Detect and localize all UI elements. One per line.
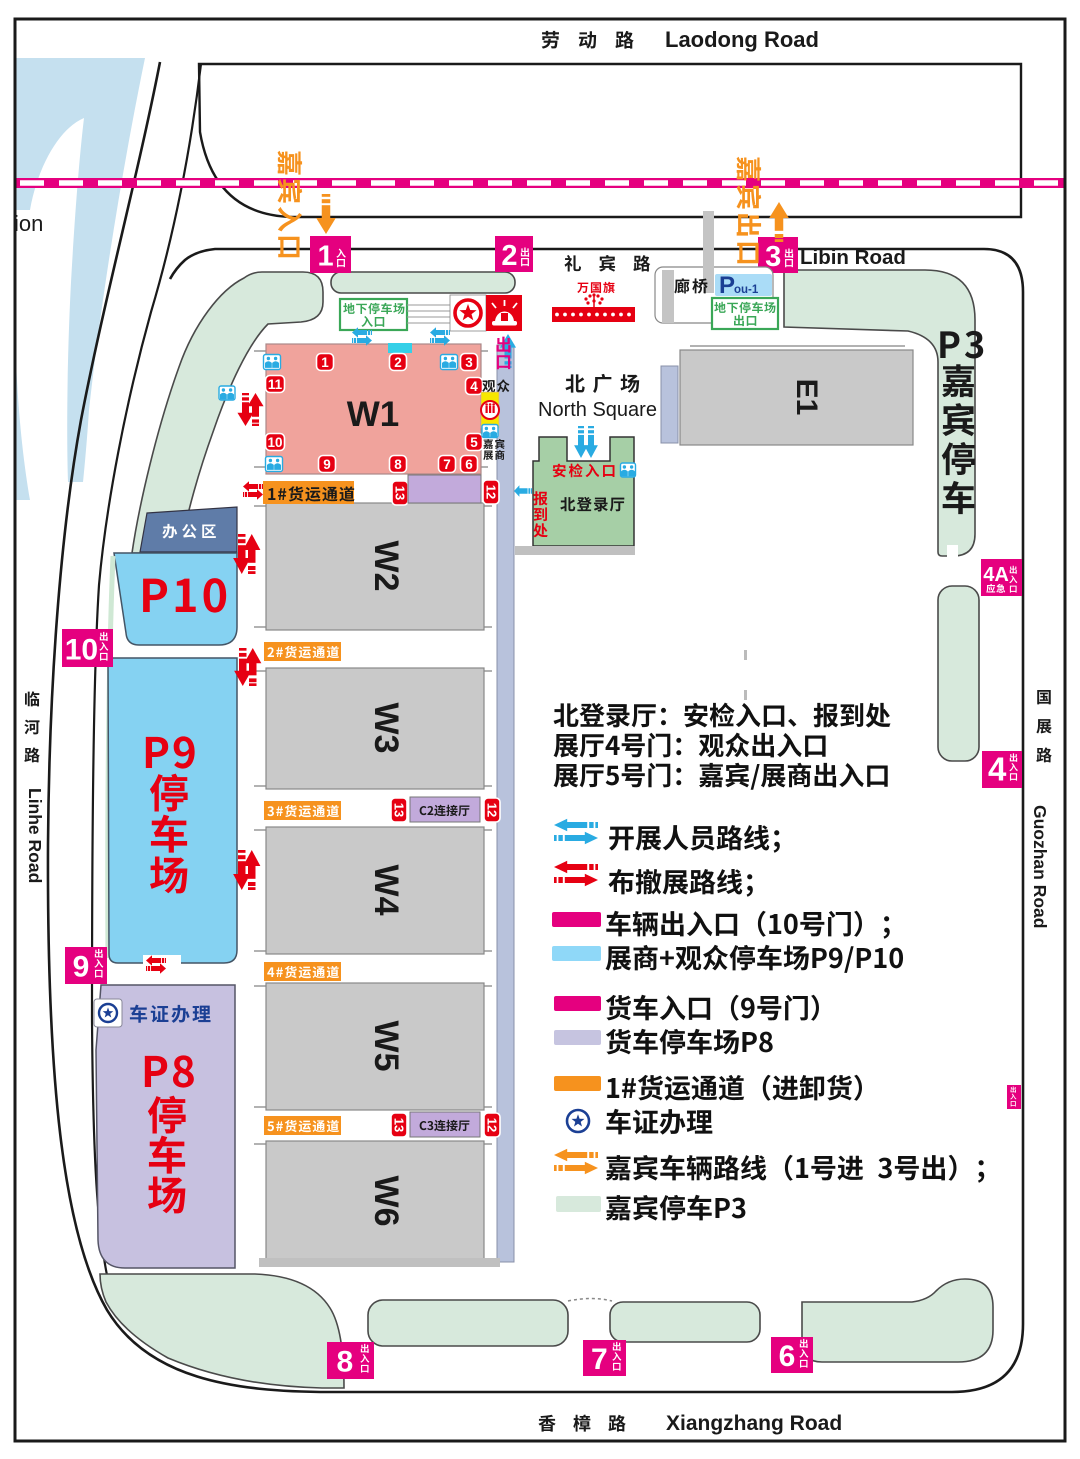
svg-text:5: 5 xyxy=(470,435,478,450)
svg-text:6: 6 xyxy=(779,1340,796,1373)
svg-text:Laodong Road: Laodong Road xyxy=(665,27,819,52)
svg-text:7: 7 xyxy=(591,1343,608,1376)
svg-text:2: 2 xyxy=(394,355,402,370)
svg-text:Xiangzhang Road: Xiangzhang Road xyxy=(666,1412,842,1435)
svg-text:9: 9 xyxy=(73,951,90,984)
svg-text:Libin Road: Libin Road xyxy=(800,246,906,269)
svg-text:ou-1: ou-1 xyxy=(734,284,759,296)
svg-text:13: 13 xyxy=(392,803,407,817)
svg-text:P: P xyxy=(719,272,735,299)
svg-text:8: 8 xyxy=(394,457,402,472)
svg-text:9: 9 xyxy=(323,457,331,472)
svg-text:W5: W5 xyxy=(367,1021,405,1072)
svg-text:ion: ion xyxy=(14,211,43,236)
svg-text:12: 12 xyxy=(485,803,500,817)
svg-text:W2: W2 xyxy=(367,541,405,592)
svg-text:2: 2 xyxy=(501,240,517,272)
svg-text:4A: 4A xyxy=(983,564,1009,586)
svg-text:1: 1 xyxy=(318,241,334,273)
svg-text:10: 10 xyxy=(267,435,282,450)
svg-text:11: 11 xyxy=(268,377,283,392)
svg-text:13: 13 xyxy=(393,486,408,500)
svg-text:4: 4 xyxy=(988,751,1007,788)
svg-text:W1: W1 xyxy=(347,395,400,434)
svg-text:6: 6 xyxy=(465,457,473,472)
svg-text:13: 13 xyxy=(392,1118,407,1132)
svg-text:4: 4 xyxy=(470,379,478,394)
svg-text:12: 12 xyxy=(485,1118,500,1132)
svg-text:8: 8 xyxy=(337,1346,354,1379)
svg-text:W3: W3 xyxy=(367,703,405,754)
svg-text:7: 7 xyxy=(443,457,451,472)
svg-text:12: 12 xyxy=(484,485,499,499)
svg-text:E1: E1 xyxy=(790,379,823,416)
svg-text:Linhe Road: Linhe Road xyxy=(25,788,45,883)
svg-text:3: 3 xyxy=(465,355,473,370)
svg-text:1: 1 xyxy=(321,355,329,370)
svg-text:W6: W6 xyxy=(367,1176,405,1227)
svg-text:10: 10 xyxy=(65,633,98,666)
svg-text:W4: W4 xyxy=(367,865,405,916)
svg-text:Guozhan Road: Guozhan Road xyxy=(1030,805,1050,928)
svg-text:North Square: North Square xyxy=(538,399,657,421)
